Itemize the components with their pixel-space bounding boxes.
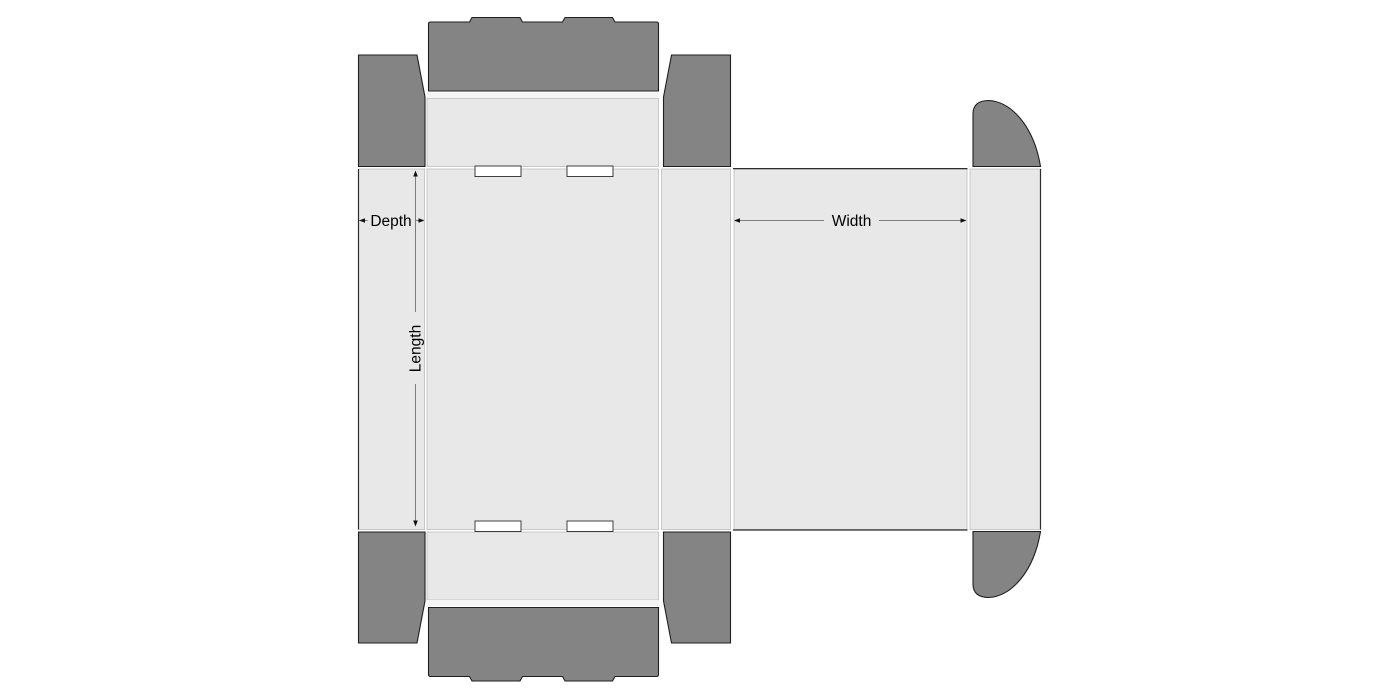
- bottom-fold-strip: [427, 600, 659, 606]
- top-right-dust-flap: [664, 55, 731, 167]
- top-glue-tab-flap: [973, 101, 1041, 167]
- bottom-tuck-panel: [427, 532, 659, 600]
- top-left-dust-flap: [359, 55, 426, 167]
- width-label: Width: [832, 213, 872, 230]
- top-lock-slot-left: [475, 166, 521, 177]
- bottom-tuck-flap: [429, 608, 659, 682]
- bottom-lock-slot-left: [475, 521, 521, 532]
- depth-label: Depth: [370, 213, 411, 230]
- bottom-right-dust-flap: [664, 532, 731, 643]
- top-fold-strip: [427, 93, 659, 99]
- top-tuck-panel: [427, 99, 659, 167]
- bottom-left-dust-flap: [359, 532, 426, 643]
- top-tuck-flap: [429, 18, 659, 92]
- dieline-canvas: Depth Length Width: [0, 0, 1400, 700]
- bottom-lock-slot-right: [567, 521, 613, 532]
- length-label: Length: [408, 325, 425, 372]
- glue-tab-panel: [970, 169, 1041, 530]
- right-depth-panel: [662, 169, 731, 530]
- top-lock-slot-right: [567, 166, 613, 177]
- bottom-glue-tab-flap: [973, 532, 1041, 598]
- front-panel: [427, 169, 659, 530]
- dieline-diagram: Depth Length Width: [0, 0, 1400, 700]
